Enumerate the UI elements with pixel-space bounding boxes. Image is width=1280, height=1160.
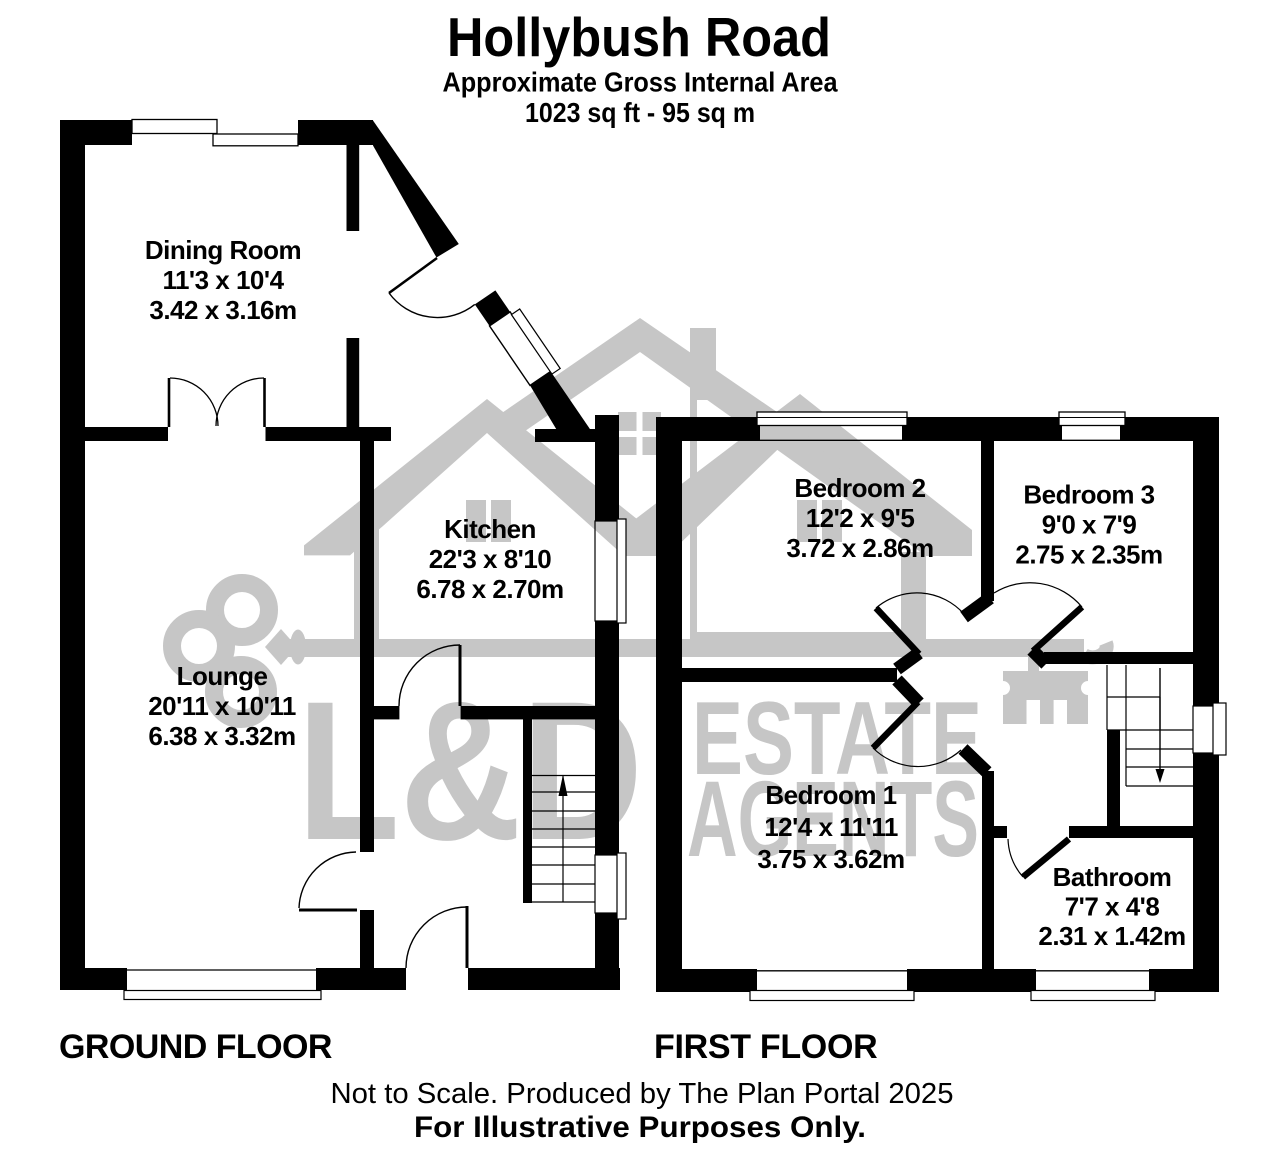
svg-text:22'3 x 8'10: 22'3 x 8'10 (429, 544, 552, 574)
svg-text:Hollybush Road: Hollybush Road (447, 6, 831, 68)
svg-text:6.78 x 2.70m: 6.78 x 2.70m (416, 574, 563, 604)
svg-text:Lounge: Lounge (177, 661, 268, 691)
svg-text:9'0 x 7'9: 9'0 x 7'9 (1042, 510, 1137, 540)
svg-text:Approximate Gross Internal Are: Approximate Gross Internal Area (443, 67, 839, 98)
svg-text:2.75 x 2.35m: 2.75 x 2.35m (1015, 540, 1162, 570)
svg-text:11'3 x 10'4: 11'3 x 10'4 (162, 265, 284, 295)
svg-text:12'2 x 9'5: 12'2 x 9'5 (806, 503, 915, 533)
svg-text:12'4 x 11'11: 12'4 x 11'11 (764, 812, 898, 842)
svg-text:3.75 x 3.62m: 3.75 x 3.62m (757, 844, 904, 874)
svg-text:L&D: L&D (297, 660, 643, 881)
svg-text:Bedroom 3: Bedroom 3 (1023, 480, 1154, 510)
svg-text:3.42 x 3.16m: 3.42 x 3.16m (149, 295, 296, 325)
svg-text:Kitchen: Kitchen (444, 514, 536, 544)
svg-text:FIRST FLOOR: FIRST FLOOR (654, 1028, 877, 1066)
svg-text:3.72 x 2.86m: 3.72 x 2.86m (786, 533, 933, 563)
svg-text:1023 sq ft - 95 sq m: 1023 sq ft - 95 sq m (525, 97, 755, 128)
svg-text:6.38 x 3.32m: 6.38 x 3.32m (148, 721, 295, 751)
svg-text:20'11 x 10'11: 20'11 x 10'11 (148, 691, 296, 721)
svg-text:7'7 x 4'8: 7'7 x 4'8 (1065, 892, 1160, 922)
svg-text:Bedroom 2: Bedroom 2 (794, 473, 925, 503)
svg-text:Dining Room: Dining Room (145, 235, 301, 265)
svg-text:Bedroom 1: Bedroom 1 (765, 780, 896, 810)
svg-text:GROUND FLOOR: GROUND FLOOR (59, 1028, 332, 1066)
svg-text:2.31 x 1.42m: 2.31 x 1.42m (1038, 921, 1185, 951)
svg-text:Not to Scale. Produced by The: Not to Scale. Produced by The Plan Porta… (331, 1078, 954, 1110)
svg-text:For Illustrative Purposes Only: For Illustrative Purposes Only. (414, 1111, 866, 1144)
svg-text:Bathroom: Bathroom (1053, 862, 1172, 892)
